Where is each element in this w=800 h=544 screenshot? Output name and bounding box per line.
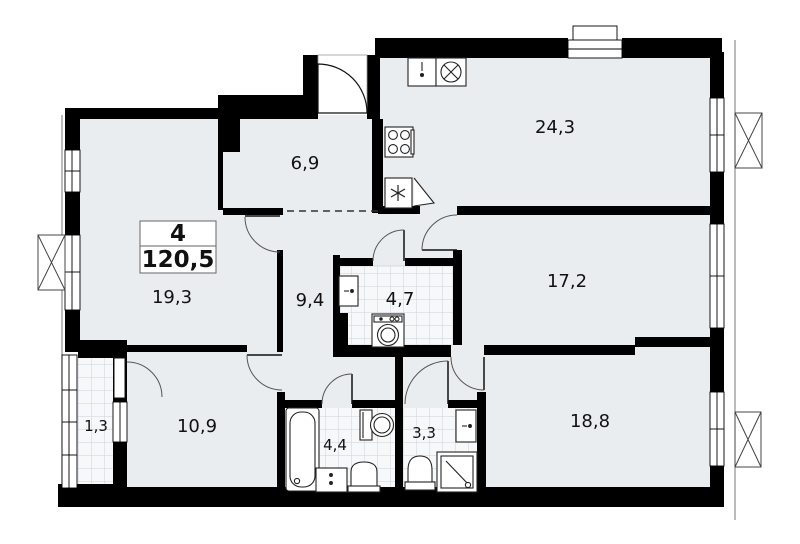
wall-bathroom [477, 392, 486, 493]
window [710, 98, 724, 172]
room-area-label: 17,2 [547, 271, 587, 292]
wall [65, 108, 232, 119]
wall [65, 192, 80, 235]
vanity-sink-icon [316, 468, 347, 492]
room-area-label: 24,3 [535, 117, 575, 138]
wall-bathroom [453, 250, 462, 345]
wall-partition [277, 250, 283, 352]
room-area-label: 10,9 [177, 416, 217, 437]
kitchen-sink-bowl-icon [436, 58, 466, 86]
room-area-label: 18,8 [570, 411, 610, 432]
wall [218, 108, 240, 152]
loggia-glazing [62, 355, 77, 488]
wall-partition [65, 345, 247, 352]
wall [65, 108, 80, 150]
room-area-label: 1,3 [84, 417, 108, 435]
wall [635, 337, 712, 347]
room-area-label: 4,7 [386, 289, 415, 310]
kitchen-sink-cabinet-icon [408, 58, 436, 86]
wall [484, 345, 635, 355]
wall-bathroom [283, 400, 322, 408]
wall [710, 52, 724, 98]
wall-partition [223, 208, 283, 215]
pedestal-sink-icon [348, 462, 380, 492]
sink-icon [339, 276, 358, 306]
bathtub-icon [286, 408, 319, 491]
wall-chunk [333, 313, 348, 347]
floor-plan: 24,3 6,9 17,2 19,3 9,4 4,7 18,8 10,9 4,4… [0, 0, 800, 544]
ac-unit-box [735, 412, 761, 467]
total-area: 120,5 [142, 247, 215, 273]
window [710, 224, 724, 328]
washing-machine-icon [372, 314, 404, 347]
room-area-label: 3,3 [412, 424, 436, 442]
room-area-label: 19,3 [152, 287, 192, 308]
sink-icon [456, 410, 476, 442]
toilet-icon [405, 456, 435, 490]
room-area-label: 6,9 [291, 153, 320, 174]
wall [710, 328, 724, 392]
wall-entrance-jamb [367, 55, 380, 119]
wall-hall-kitchen [372, 119, 383, 213]
shower-icon [437, 452, 477, 492]
wall-partition [218, 152, 223, 210]
wall-bathroom [277, 392, 285, 493]
wall-bathroom [405, 258, 460, 266]
wall-bathroom [333, 258, 373, 266]
floor-plan-svg: 24,3 6,9 17,2 19,3 9,4 4,7 18,8 10,9 4,4… [0, 0, 800, 544]
rooms-count: 4 [170, 221, 186, 247]
ac-unit-box [38, 235, 65, 290]
wall [375, 38, 568, 58]
wall [622, 38, 722, 58]
wall-entrance-jamb [303, 55, 318, 119]
entrance-door [318, 55, 367, 113]
window [113, 402, 127, 442]
wall [58, 487, 722, 507]
window [568, 26, 622, 58]
window [65, 150, 80, 192]
window [65, 235, 80, 310]
window [710, 392, 724, 466]
wall [457, 206, 710, 215]
wall [710, 172, 724, 224]
room-area-label: 4,4 [323, 436, 347, 454]
ac-unit-box [735, 113, 762, 168]
apartment-info-box: 4 120,5 [140, 221, 216, 273]
room-area-label: 9,4 [296, 290, 325, 311]
stove-icon [385, 127, 414, 157]
wall-bathroom [395, 348, 403, 493]
